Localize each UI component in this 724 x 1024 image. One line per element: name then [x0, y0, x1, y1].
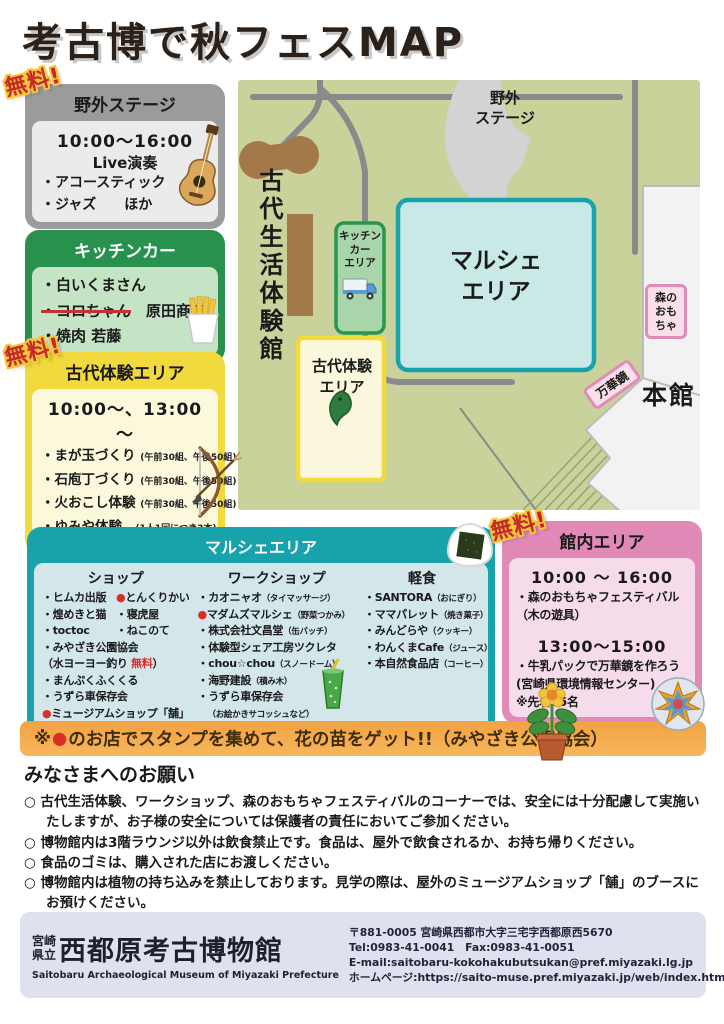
- map-marche-area-label: マルシェエリア: [398, 246, 594, 308]
- list-item: ・森のおもちゃフェスティバル: [516, 588, 688, 606]
- list-item: ・カオニャオ（タイマッサージ）: [198, 590, 356, 607]
- cancelled-vendor: ・コロちゃん: [41, 302, 131, 320]
- contact-info: 〒881-0005 宮崎県西都市大字三宅字西都原西5670 Tel:0983-4…: [349, 925, 724, 985]
- list-item: ・まんぷくふくくる: [42, 673, 190, 690]
- page-title: 考古博で秋フェスMAP: [22, 10, 464, 68]
- list-item: ・株式会社文昌堂（缶バッチ）: [198, 623, 356, 640]
- notice-item: ○ 博物館内は3階ラウンジ以外は飲食禁止です。食品は、屋外で飲食されるか、お持ち…: [24, 833, 708, 853]
- map-honkan-label: 本館: [642, 376, 696, 412]
- map-path: [460, 408, 536, 510]
- notice-item: ○ 食品のゴミは、購入された店にお渡しください。: [24, 853, 708, 873]
- list-item: ・toctoc ・ねこのて: [42, 623, 190, 640]
- marche-area-title: マルシェエリア: [34, 531, 488, 563]
- kaleidoscope-icon: [650, 676, 706, 732]
- map-stage-label: 野外ステージ: [450, 88, 560, 129]
- shop-column: ショップ ・ヒムカ出版 ●とんくりかい ・煌めきと猫 ・寝虎屋 ・toctoc …: [42, 568, 190, 722]
- map-taikenkan-label: 古代生活体験館: [252, 168, 287, 364]
- notice-item: ○ 古代生活体験、ワークショップ、森のおもちゃフェスティバルのコーナーでは、安全…: [24, 792, 708, 833]
- list-item: ・うずら車保存会: [42, 689, 190, 706]
- list-item: ・SANTORA（おにぎり）: [364, 590, 480, 607]
- list-item: ・ヒムカ出版 ●とんくりかい: [42, 590, 190, 607]
- list-item: ・牛乳パックで万華鏡を作ろう: [516, 657, 688, 675]
- list-item: ・本自然食品店（コーヒー）: [364, 656, 480, 673]
- kitchen-car-title: キッチンカー: [32, 234, 218, 267]
- list-item: ・みやざき公園協会: [42, 640, 190, 657]
- flower-pot-icon: [522, 682, 582, 762]
- list-item: ・体験型シェア工房ツクレタ: [198, 640, 356, 657]
- list-item: （水ヨーヨー釣り 無料）: [42, 656, 190, 673]
- festival-map: 野外ステージ 古代生活体験館 キッチンカーエリア マルシェエリア 古代体験エリア…: [238, 80, 700, 510]
- magatama-icon: [326, 388, 356, 428]
- list-item: ・わんくまCafe（ジュース）: [364, 640, 480, 657]
- prefecture-label: 宮崎県立: [32, 935, 56, 961]
- marche-area-card: マルシェエリア ショップ ・ヒムカ出版 ●とんくりかい ・煌めきと猫 ・寝虎屋 …: [27, 527, 495, 736]
- list-item: ・みんどらや（クッキー）: [364, 623, 480, 640]
- list-item: ●ミュージアムショップ「舗」: [42, 706, 190, 723]
- map-kitchen-area-label: キッチンカーエリア: [336, 230, 384, 271]
- outdoor-stage-title: 野外ステージ: [32, 88, 218, 121]
- tel-fax-line: Tel:0983-41-0041 Fax:0983-41-0051: [349, 940, 724, 955]
- museum-name-english: Saitobaru Archaeological Museum of Miyaz…: [32, 970, 339, 981]
- list-item: ・火おこし体験 (午前30組、午後50組): [41, 492, 209, 516]
- food-column: 軽食 ・SANTORA（おにぎり） ・ママパレット（焼き菓子） ・みんどらや（ク…: [364, 568, 480, 722]
- fries-icon: [182, 296, 224, 344]
- museum-footer: 宮崎県立 西都原考古博物館 Saitobaru Archaeological M…: [20, 912, 706, 998]
- notice-item: ○ 博物館内は植物の持ち込みを禁止しております。見学の際は、屋外のミュージアムシ…: [24, 873, 708, 914]
- food-truck-icon: [342, 276, 378, 302]
- kannai-time-2: 13:00～15:00: [516, 633, 688, 657]
- flyer-page: 考古博で秋フェスMAP 無料! 無料! 無料! 野外ステージ 10:00～16:…: [0, 0, 724, 1024]
- honkan-building-shape: [586, 186, 700, 510]
- ancient-experience-title: 古代体験エリア: [32, 356, 218, 389]
- email-line: E-mail:saitobaru-kokohakubutsukan@pref.m…: [349, 955, 724, 970]
- address-line: 〒881-0005 宮崎県西都市大字三宅字西都原西5670: [349, 925, 724, 940]
- bow-arrow-icon: [186, 444, 242, 520]
- stamp-rally-banner: ※●のお店でスタンプを集めて、花の苗をゲット!!（みやざき公園協会）: [20, 721, 706, 756]
- list-item: ・ママパレット（焼き菓子）: [364, 607, 480, 624]
- museum-name: 西都原考古博物館: [59, 929, 283, 968]
- museum-logo: 宮崎県立 西都原考古博物館 Saitobaru Archaeological M…: [32, 929, 339, 981]
- kannai-time-1: 10:00 ～ 16:00: [516, 564, 688, 588]
- notice-title: みなさまへのお願い: [24, 760, 708, 787]
- homepage-line: ホームページ:https://saito-muse.pref.miyazaki.…: [349, 970, 724, 985]
- red-dot-icon: ●: [51, 729, 68, 749]
- onigiri-icon: [444, 522, 496, 570]
- list-item: ・煌めきと猫 ・寝虎屋: [42, 607, 190, 624]
- list-item: ●マダムズマルシェ（野菜つかみ）: [198, 607, 356, 624]
- list-item: ・まが玉づくり (午前30組、午後50組): [41, 445, 209, 469]
- list-item: ・石庖丁づくり (午前30組、午後50組): [41, 469, 209, 493]
- taikenkan-building-shape: [287, 214, 313, 316]
- kodai-time: 10:00～、13:00～: [41, 395, 209, 445]
- map-mori-omocha-label: 森のおもちゃ: [645, 284, 687, 339]
- visitor-notice: みなさまへのお願い ○ 古代生活体験、ワークショップ、森のおもちゃフェスティバル…: [24, 760, 708, 914]
- drink-icon: [316, 658, 348, 710]
- list-item: ・白いくまさん: [41, 273, 209, 299]
- list-item: （木の遊具）: [516, 606, 688, 624]
